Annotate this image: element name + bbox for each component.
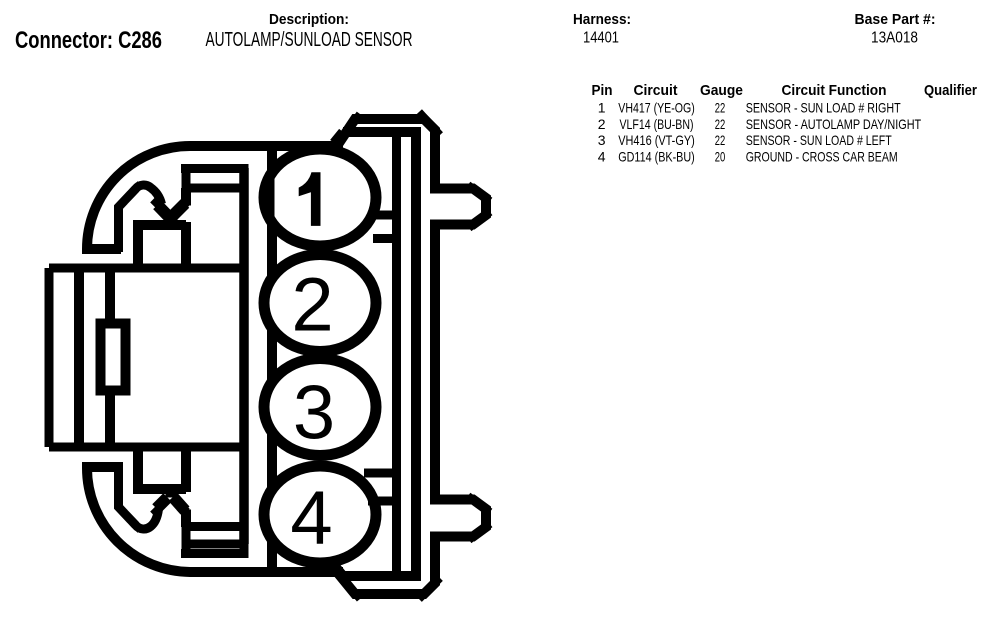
- svg-text:Connector: C286: Connector: C286: [15, 27, 162, 54]
- svg-text:AUTOLAMP/SUNLOAD SENSOR: AUTOLAMP/SUNLOAD SENSOR: [206, 29, 413, 51]
- svg-text:SENSOR - SUN LOAD # RIGHT: SENSOR - SUN LOAD # RIGHT: [746, 100, 901, 116]
- svg-text:Circuit Function: Circuit Function: [782, 82, 887, 99]
- svg-text:3: 3: [598, 132, 606, 148]
- svg-text:4: 4: [290, 476, 332, 561]
- svg-text:20: 20: [715, 149, 726, 165]
- svg-text:13A018: 13A018: [871, 30, 918, 47]
- svg-text:2: 2: [598, 116, 606, 132]
- svg-text:Pin: Pin: [592, 82, 613, 99]
- svg-text:22: 22: [715, 100, 726, 116]
- svg-text:Circuit: Circuit: [634, 82, 678, 99]
- svg-text:SENSOR - SUN LOAD # LEFT: SENSOR - SUN LOAD # LEFT: [746, 132, 892, 148]
- svg-text:Harness:: Harness:: [573, 11, 631, 28]
- svg-text:SENSOR - AUTOLAMP DAY/NIGHT: SENSOR - AUTOLAMP DAY/NIGHT: [746, 116, 922, 132]
- svg-text:4: 4: [598, 149, 606, 165]
- svg-text:VH417 (YE-OG): VH417 (YE-OG): [618, 100, 695, 116]
- svg-text:VLF14 (BU-BN): VLF14 (BU-BN): [620, 116, 694, 132]
- svg-text:22: 22: [715, 132, 726, 148]
- svg-text:22: 22: [715, 116, 726, 132]
- svg-text:GROUND - CROSS CAR BEAM: GROUND - CROSS CAR BEAM: [746, 149, 898, 165]
- svg-text:14401: 14401: [583, 30, 619, 47]
- svg-text:Description:: Description:: [269, 11, 349, 28]
- svg-text:Gauge: Gauge: [700, 82, 743, 99]
- svg-text:2: 2: [291, 263, 333, 348]
- svg-text:1: 1: [598, 100, 606, 116]
- svg-text:GD114 (BK-BU): GD114 (BK-BU): [618, 149, 695, 165]
- svg-text:Base Part #:: Base Part #:: [855, 11, 936, 28]
- svg-text:VH416 (VT-GY): VH416 (VT-GY): [618, 132, 695, 148]
- svg-text:3: 3: [293, 371, 335, 456]
- svg-text:Qualifier: Qualifier: [924, 82, 977, 99]
